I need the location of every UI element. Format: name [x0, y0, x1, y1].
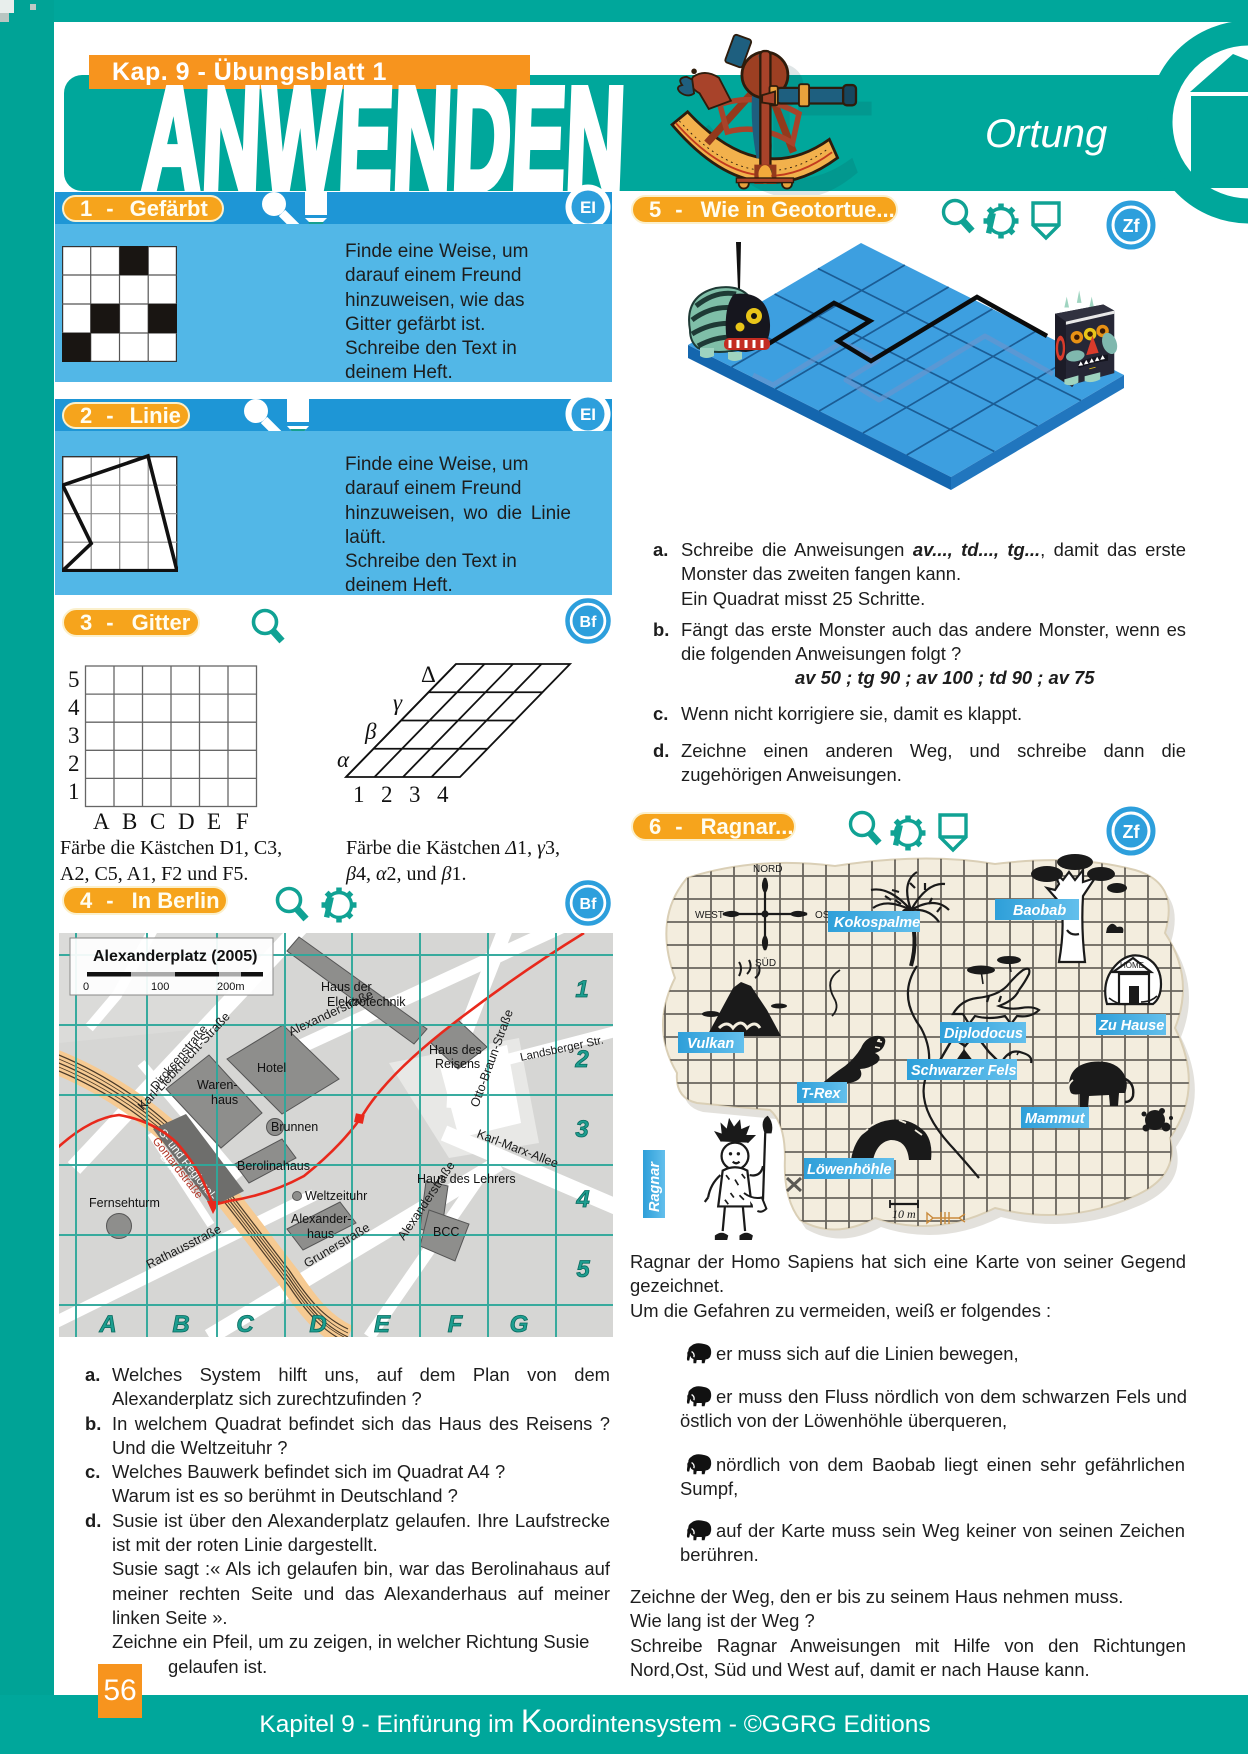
- svg-text:Zu Hause: Zu Hause: [1098, 1018, 1164, 1034]
- svg-text:SÜD: SÜD: [755, 957, 776, 969]
- svg-text:Brunnen: Brunnen: [271, 1120, 318, 1134]
- svg-text:A: A: [98, 1311, 116, 1337]
- svg-text:EI: EI: [580, 405, 596, 424]
- svg-text:C: C: [150, 809, 165, 830]
- svg-text:3: 3: [575, 1116, 589, 1143]
- svg-text:F: F: [448, 1311, 464, 1337]
- svg-text:2: 2: [68, 751, 80, 776]
- svg-text:1: 1: [68, 779, 80, 804]
- svg-text:Kokospalme: Kokospalme: [834, 915, 920, 931]
- svg-text:Δ: Δ: [421, 662, 436, 687]
- svg-text:A: A: [93, 809, 110, 830]
- svg-text:D: D: [178, 809, 195, 830]
- svg-text:4: 4: [437, 782, 449, 807]
- svg-text:3: 3: [409, 782, 421, 807]
- svg-text:5: 5: [576, 1256, 590, 1283]
- svg-text:haus: haus: [307, 1227, 334, 1241]
- svg-text:B: B: [172, 1311, 189, 1337]
- svg-text:Diplodocus: Diplodocus: [944, 1026, 1023, 1042]
- svg-text:Vulkan: Vulkan: [687, 1036, 734, 1052]
- svg-text:G: G: [510, 1311, 529, 1337]
- svg-text:3: 3: [68, 723, 80, 748]
- svg-text:200m: 200m: [217, 981, 245, 993]
- svg-text:2: 2: [381, 782, 393, 807]
- svg-text:Fernsehturm: Fernsehturm: [89, 1196, 160, 1210]
- svg-text:C: C: [236, 1311, 254, 1337]
- svg-text:Haus des Lehrers: Haus des Lehrers: [417, 1172, 516, 1186]
- svg-text:WEST: WEST: [695, 910, 724, 921]
- svg-text:Baobab: Baobab: [1013, 903, 1066, 919]
- svg-text:1: 1: [353, 782, 365, 807]
- svg-text:Reisens: Reisens: [435, 1057, 480, 1071]
- svg-text:Alexanderplatz (2005): Alexanderplatz (2005): [93, 948, 258, 965]
- svg-text:1: 1: [575, 976, 588, 1003]
- svg-text:Elektrotechnik: Elektrotechnik: [327, 995, 406, 1009]
- svg-text:0: 0: [83, 981, 89, 993]
- svg-text:Alexander-: Alexander-: [291, 1212, 351, 1226]
- svg-text:100: 100: [151, 981, 169, 993]
- svg-text:B: B: [122, 809, 137, 830]
- svg-text:Zf: Zf: [1123, 822, 1141, 842]
- svg-text:α: α: [337, 747, 350, 772]
- svg-text:D: D: [309, 1311, 326, 1337]
- svg-text:E: E: [207, 809, 221, 830]
- svg-text:5: 5: [68, 667, 80, 692]
- svg-text:4: 4: [68, 695, 80, 720]
- svg-text:10 m: 10 m: [892, 1207, 916, 1221]
- svg-text:Schwarzer Fels: Schwarzer Fels: [911, 1063, 1017, 1079]
- svg-text:Haus der: Haus der: [321, 980, 372, 994]
- svg-text:β: β: [364, 719, 377, 744]
- svg-text:haus: haus: [211, 1093, 238, 1107]
- svg-text:Waren-: Waren-: [197, 1078, 238, 1092]
- svg-text:Mammut: Mammut: [1025, 1111, 1086, 1127]
- svg-text:Berolinahaus: Berolinahaus: [237, 1159, 310, 1173]
- svg-text:Ragnar: Ragnar: [647, 1161, 663, 1212]
- svg-text:T-Rex: T-Rex: [801, 1086, 841, 1102]
- svg-text:F: F: [236, 809, 249, 830]
- svg-text:Bf: Bf: [580, 614, 598, 631]
- svg-text:γ: γ: [393, 690, 403, 715]
- svg-text:E: E: [374, 1311, 391, 1337]
- svg-text:Bf: Bf: [580, 896, 598, 913]
- svg-text:HOME: HOME: [1120, 961, 1144, 970]
- svg-text:NORD: NORD: [753, 864, 782, 875]
- svg-text:4: 4: [575, 1186, 589, 1213]
- svg-text:BCC: BCC: [433, 1225, 459, 1239]
- svg-text:Löwenhöhle: Löwenhöhle: [807, 1162, 892, 1178]
- svg-text:Haus des: Haus des: [429, 1043, 482, 1057]
- svg-text:EI: EI: [580, 198, 596, 217]
- svg-text:Weltzeituhr: Weltzeituhr: [305, 1189, 367, 1203]
- svg-text:Hotel: Hotel: [257, 1061, 286, 1075]
